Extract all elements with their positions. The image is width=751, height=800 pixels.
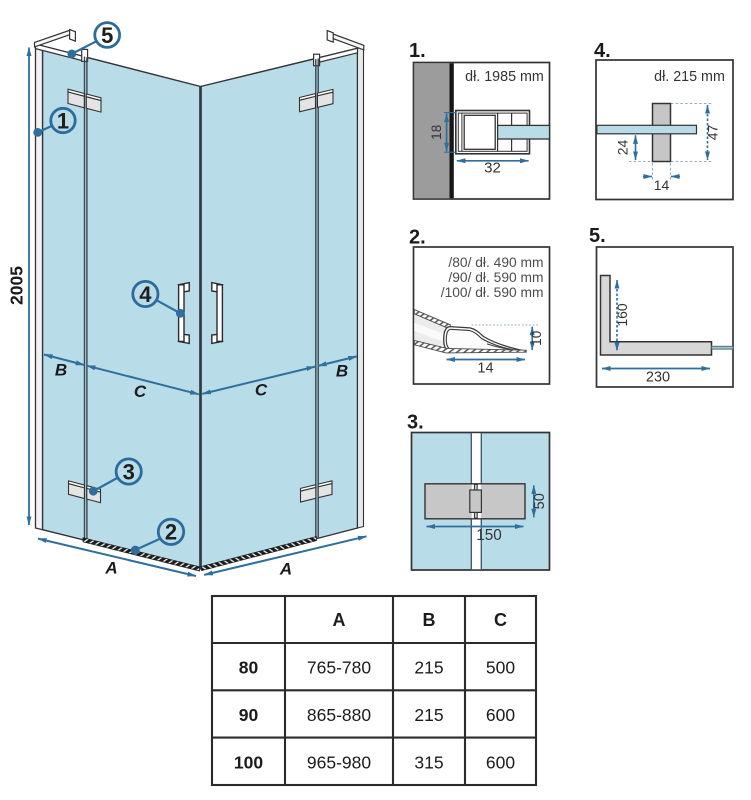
svg-text:/80/ dł. 490 mm: /80/ dł. 490 mm [448, 255, 543, 270]
svg-text:150: 150 [476, 527, 502, 544]
svg-text:1.: 1. [409, 40, 426, 62]
svg-text:5: 5 [101, 23, 113, 48]
svg-text:B: B [423, 610, 436, 630]
svg-text:24: 24 [615, 140, 631, 156]
svg-text:dł. 215 mm: dł. 215 mm [654, 69, 725, 85]
svg-text:18: 18 [429, 125, 444, 140]
svg-text:600: 600 [486, 705, 515, 725]
svg-text:600: 600 [486, 753, 515, 773]
svg-text:2005: 2005 [7, 266, 27, 305]
svg-text:B: B [336, 362, 348, 381]
svg-text:80: 80 [239, 658, 259, 678]
svg-text:90: 90 [239, 705, 259, 725]
svg-text:14: 14 [477, 361, 493, 377]
svg-text:5.: 5. [589, 225, 606, 247]
svg-text:47: 47 [705, 125, 721, 141]
svg-text:215: 215 [414, 705, 443, 725]
svg-text:C: C [134, 382, 147, 401]
svg-text:4.: 4. [594, 40, 611, 62]
svg-text:100: 100 [234, 753, 263, 773]
svg-text:160: 160 [614, 303, 630, 327]
svg-text:14: 14 [654, 177, 670, 193]
svg-text:865-880: 865-880 [307, 705, 371, 725]
svg-text:/90/ dł. 590 mm: /90/ dł. 590 mm [448, 270, 543, 285]
svg-text:/100/ dł. 590 mm: /100/ dł. 590 mm [441, 285, 544, 300]
svg-text:C: C [494, 610, 507, 630]
svg-text:3.: 3. [407, 412, 424, 434]
svg-text:32: 32 [484, 160, 501, 177]
svg-text:2.: 2. [409, 227, 426, 249]
svg-text:965-980: 965-980 [307, 753, 371, 773]
svg-text:50: 50 [532, 493, 548, 509]
svg-text:315: 315 [414, 753, 443, 773]
svg-text:1: 1 [57, 108, 69, 133]
svg-text:3: 3 [123, 459, 135, 484]
svg-text:2: 2 [165, 520, 177, 545]
svg-text:10: 10 [529, 331, 544, 346]
svg-text:A: A [279, 560, 292, 579]
svg-text:C: C [255, 381, 268, 400]
svg-text:765-780: 765-780 [307, 658, 371, 678]
svg-text:B: B [55, 361, 67, 380]
svg-text:dł. 1985 mm: dł. 1985 mm [465, 69, 544, 85]
svg-text:500: 500 [486, 658, 515, 678]
svg-text:4: 4 [139, 282, 152, 307]
svg-text:230: 230 [646, 370, 670, 386]
svg-text:215: 215 [414, 658, 443, 678]
svg-text:A: A [333, 610, 346, 630]
svg-text:A: A [104, 559, 117, 578]
